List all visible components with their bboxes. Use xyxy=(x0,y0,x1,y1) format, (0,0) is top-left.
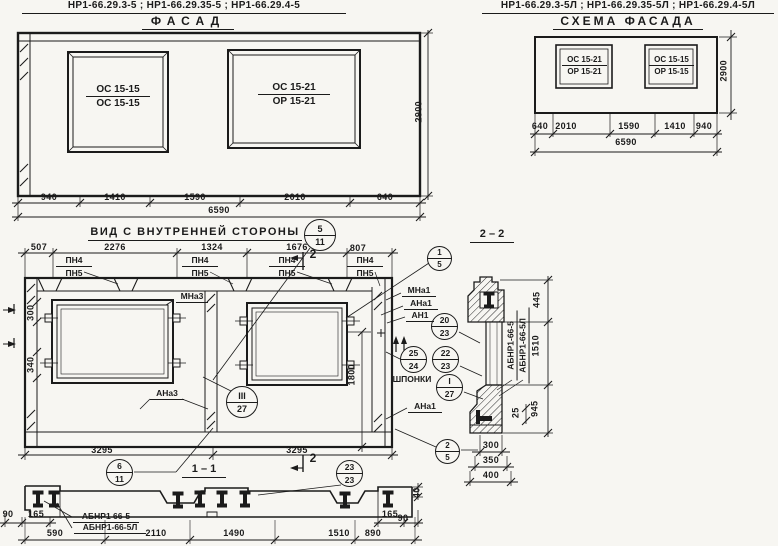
inner-view-title: ВИД С ВНУТРЕННЕЙ СТОРОНЫ xyxy=(88,227,302,241)
mark-top: ОС 15-15 xyxy=(649,55,694,66)
schema-window-left-mark: ОС 15-21 ОР 15-21 xyxy=(562,55,607,76)
section-2-2-title: 2 – 2 xyxy=(470,229,514,243)
label-ana3: АНа3 xyxy=(150,389,184,400)
label-abnr1-66-5l: АБНР1-66-5Л xyxy=(74,523,146,534)
dim-1510: 1510 xyxy=(531,329,540,363)
dim-label: 2010 xyxy=(277,193,313,202)
callout-top: 23 xyxy=(337,461,362,474)
mark-bottom: ПН5 xyxy=(182,267,218,278)
label-an1: АН1 xyxy=(406,311,434,322)
mark-bottom: ПН5 xyxy=(56,267,92,278)
mark-bottom: ОР 15-15 xyxy=(649,66,694,76)
callout-25-24: 25 24 xyxy=(400,346,427,373)
callout-bottom: 23 xyxy=(337,474,362,486)
dim-label: 1324 xyxy=(194,243,230,252)
dim-label: 940 xyxy=(690,122,718,131)
dim-label: 350 xyxy=(477,456,505,465)
mark-top: ПН4 xyxy=(269,255,305,267)
mark-bottom: ПН5 xyxy=(347,267,383,278)
callout-20-23: 20 23 xyxy=(431,313,458,340)
callout-I-27: I 27 xyxy=(436,374,463,401)
mark-top: ОС 15-21 xyxy=(258,82,330,95)
dim-165-left: 165 xyxy=(24,510,48,519)
dim-label: 590 xyxy=(41,529,69,538)
dim-label: 400 xyxy=(477,471,505,480)
section-1-1-title: 1 – 1 xyxy=(182,464,226,478)
schema-title: СХЕМА ФАСАДА xyxy=(553,15,703,30)
joint-mark-pn: ПН4 ПН5 xyxy=(182,255,218,278)
facade-title: ФАСАД xyxy=(142,15,234,30)
label-abnr1-66-5l: АБНР1-66-5Л xyxy=(519,307,530,383)
dim-300: 300 xyxy=(26,299,35,327)
dim-945: 945 xyxy=(530,396,539,422)
callout-III-27: III 27 xyxy=(226,386,258,418)
dim-label: 1410 xyxy=(97,193,133,202)
callout-bottom: 11 xyxy=(107,473,132,485)
dim-445: 445 xyxy=(532,287,541,313)
callout-bottom: 23 xyxy=(432,327,457,339)
dim-height: 2900 xyxy=(414,92,423,132)
mark-bottom: ПН5 xyxy=(269,267,305,278)
mark-top: ОС 15-15 xyxy=(86,84,150,97)
label-abnr1-66-5: АБНР1-66-5 xyxy=(507,310,518,380)
dim-25: 25 xyxy=(511,403,520,423)
callout-top: 25 xyxy=(401,347,426,360)
callout-top: 20 xyxy=(432,314,457,327)
callout-23-23: 23 23 xyxy=(336,460,363,487)
callout-top: 6 xyxy=(107,460,132,473)
dim-label: 507 xyxy=(24,243,54,252)
dim-1800: 1800 xyxy=(347,357,356,393)
dim-40: 40 xyxy=(412,483,421,503)
label-ana1-lower: АНа1 xyxy=(408,402,442,413)
callout-22-23: 22 23 xyxy=(432,346,459,373)
dim-90-right: 90 xyxy=(394,514,412,523)
callout-bottom: 27 xyxy=(227,403,257,418)
dim-90-left: 90 xyxy=(0,510,16,519)
label-mna1: МНа1 xyxy=(402,286,436,297)
callout-bottom: 24 xyxy=(401,360,426,372)
dim-height: 2900 xyxy=(719,51,728,91)
callout-top: 1 xyxy=(428,247,451,259)
drawing-sheet: 5 11 1 5 20 23 25 24 22 23 I 27 III 27 6… xyxy=(0,0,778,546)
callout-1-5: 1 5 xyxy=(427,246,452,271)
mark-bottom: ОР 15-21 xyxy=(258,95,330,107)
dim-label: 1590 xyxy=(613,122,645,131)
dim-label: 890 xyxy=(359,529,387,538)
callout-bottom: 23 xyxy=(433,360,458,372)
mark-bottom: ОР 15-21 xyxy=(562,66,607,76)
joint-mark-pn: ПН4 ПН5 xyxy=(269,255,305,278)
facade-window-left-mark: ОС 15-15 ОС 15-15 xyxy=(86,84,150,109)
facade-codes: НР1-66.29.3-5 ; НР1-66.29.35-5 ; НР1-66.… xyxy=(22,1,346,14)
dim-label: 3295 xyxy=(84,446,120,455)
mark-bottom: ОС 15-15 xyxy=(86,97,150,109)
dim-label: 3295 xyxy=(279,446,315,455)
dim-total: 6590 xyxy=(199,206,239,215)
dim-label: 300 xyxy=(477,441,505,450)
schema-codes: НР1-66.29.3-5Л ; НР1-66.29.35-5Л ; НР1-6… xyxy=(482,1,774,14)
callout-top: III xyxy=(227,387,257,403)
dim-label: 1410 xyxy=(659,122,691,131)
label-mna3: МНа3 xyxy=(176,292,208,303)
dim-340: 340 xyxy=(26,351,35,379)
dim-label: 1590 xyxy=(177,193,213,202)
dim-label: 640 xyxy=(369,193,401,202)
mark-top: ПН4 xyxy=(56,255,92,267)
schema-window-right-mark: ОС 15-15 ОР 15-15 xyxy=(649,55,694,76)
dim-total: 6590 xyxy=(606,138,646,147)
label-ana1: АНа1 xyxy=(404,299,438,310)
dim-label: 2110 xyxy=(140,529,172,538)
dim-label: 1490 xyxy=(218,529,250,538)
mark-top: ПН4 xyxy=(182,255,218,267)
callout-2-5: 2 5 xyxy=(435,439,460,464)
callout-top: 2 xyxy=(436,440,459,452)
facade-window-right-mark: ОС 15-21 ОР 15-21 xyxy=(258,82,330,107)
callout-bottom: 27 xyxy=(437,388,462,400)
callout-top: 5 xyxy=(305,220,335,236)
callout-bottom: 5 xyxy=(436,452,459,463)
callout-top: 22 xyxy=(433,347,458,360)
cut-mark-2-top: 2 xyxy=(306,248,320,261)
dim-label: 2276 xyxy=(97,243,133,252)
dim-label: 2010 xyxy=(550,122,582,131)
joint-mark-pn: ПН4 ПН5 xyxy=(347,255,383,278)
label-shponki: ШПОНКИ xyxy=(388,375,436,384)
dim-label: 807 xyxy=(343,244,373,253)
dim-label: 940 xyxy=(34,193,64,202)
joint-mark-pn: ПН4 ПН5 xyxy=(56,255,92,278)
mark-top: ПН4 xyxy=(347,255,383,267)
dim-label: 1510 xyxy=(323,529,355,538)
callout-6-11: 6 11 xyxy=(106,459,133,486)
mark-top: ОС 15-21 xyxy=(562,55,607,66)
callout-bottom: 5 xyxy=(428,259,451,270)
callout-top: I xyxy=(437,375,462,388)
